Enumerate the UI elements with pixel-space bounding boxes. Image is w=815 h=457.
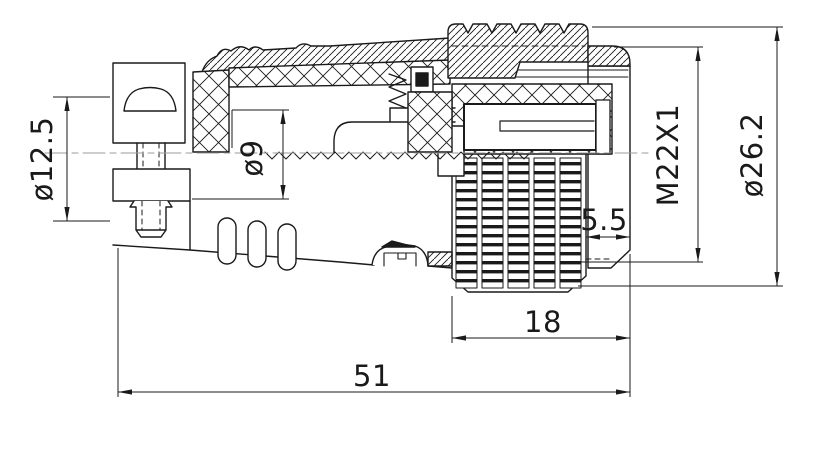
insulator-left-crosshatch: [408, 92, 452, 152]
clamp-bottom-block: [113, 169, 190, 201]
latch-hatched-bar: [428, 252, 452, 266]
screw-shank-hidden-lines: [143, 143, 159, 169]
knurl-column: [560, 158, 581, 288]
boot-gland-crosshatch: [193, 70, 229, 152]
knurl-column: [456, 158, 477, 288]
dim-label-clamp-diameter: ø12.5: [25, 117, 59, 202]
seal-block-core: [416, 73, 428, 86]
boot-rib: [248, 221, 266, 267]
coupling-body: [438, 66, 630, 292]
dim-label-rear-gap: 5.5: [580, 203, 628, 237]
extension-lines: [53, 97, 110, 221]
dimension-rear-gap: 5.5: [580, 203, 630, 237]
lower-screw: [130, 201, 172, 237]
latch-flag: [382, 241, 415, 247]
dim-label-thread-spec: M22X1: [651, 104, 685, 207]
latch-detail: [372, 241, 452, 266]
screw-shank-lines: [137, 143, 165, 169]
knurl-column: [534, 158, 555, 288]
dim-label-coupling-length: 18: [524, 305, 562, 339]
boot-rib: [218, 218, 236, 264]
contact-end-cap: [596, 100, 610, 154]
dim-label-outer-diameter: ø26.2: [735, 113, 769, 198]
nut-right-section: [588, 46, 630, 66]
knurl-column: [482, 158, 503, 288]
cable-clamp: [113, 63, 190, 250]
connector-cross-section-drawing: ø12.5 ø9 M22X1 ø26.2 5.5 18: [0, 0, 815, 457]
dim-label-overall-length: 51: [353, 359, 391, 393]
boot-rib: [278, 224, 296, 270]
dimension-clamp-diameter: ø12.5: [25, 97, 110, 221]
knurl-column: [508, 158, 529, 288]
dim-label-cable-entry: ø9: [235, 139, 269, 176]
drawing-page: ø12.5 ø9 M22X1 ø26.2 5.5 18: [0, 0, 815, 457]
contact-pin: [464, 104, 596, 150]
